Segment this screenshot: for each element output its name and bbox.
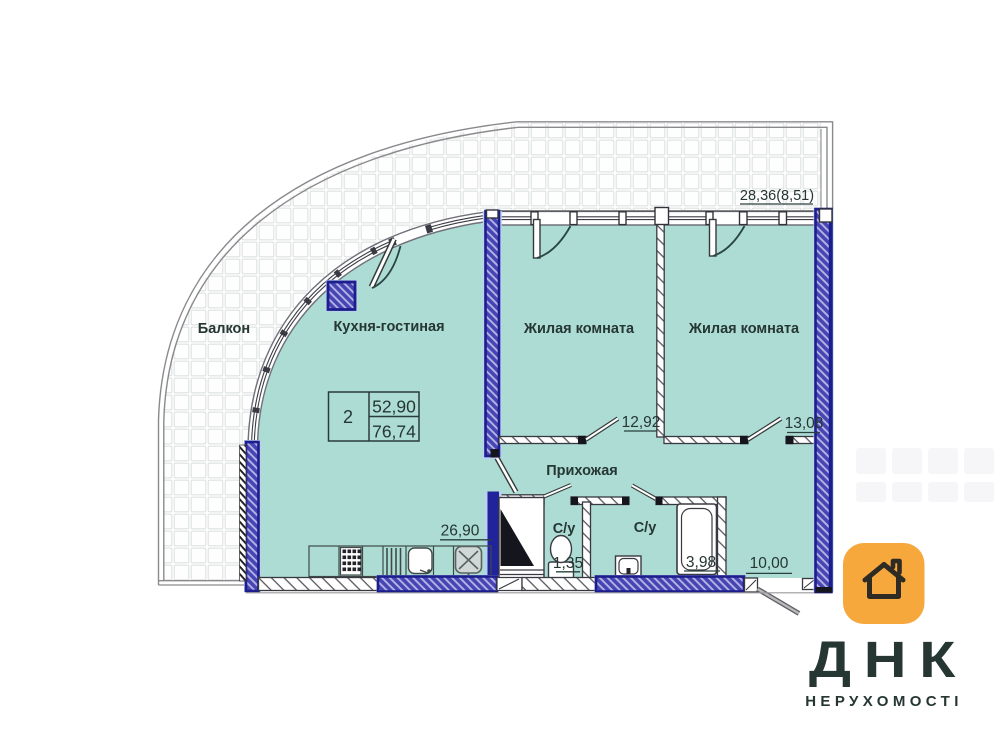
svg-text:10,00: 10,00: [750, 555, 789, 572]
svg-text:1,35: 1,35: [553, 555, 583, 572]
svg-text:Жилая комната: Жилая комната: [523, 321, 635, 337]
svg-text:26,90: 26,90: [441, 523, 480, 540]
svg-text:С/у: С/у: [634, 520, 657, 536]
svg-text:ДНК: ДНК: [809, 631, 968, 688]
svg-text:28,36(8,51): 28,36(8,51): [740, 188, 814, 204]
svg-text:2: 2: [343, 407, 353, 427]
svg-text:3,98: 3,98: [686, 554, 716, 571]
svg-text:12,92: 12,92: [622, 414, 661, 431]
svg-text:Прихожая: Прихожая: [546, 463, 618, 479]
svg-text:Жилая комната: Жилая комната: [688, 321, 800, 337]
svg-text:С/у: С/у: [553, 521, 576, 537]
svg-text:Балкон: Балкон: [198, 321, 250, 337]
svg-text:13,08: 13,08: [785, 415, 824, 432]
svg-text:НЕРУХОМОСТІ: НЕРУХОМОСТІ: [805, 693, 963, 710]
svg-text:76,74: 76,74: [372, 422, 416, 442]
svg-text:Кухня-гостиная: Кухня-гостиная: [333, 319, 444, 335]
svg-text:52,90: 52,90: [372, 397, 416, 417]
